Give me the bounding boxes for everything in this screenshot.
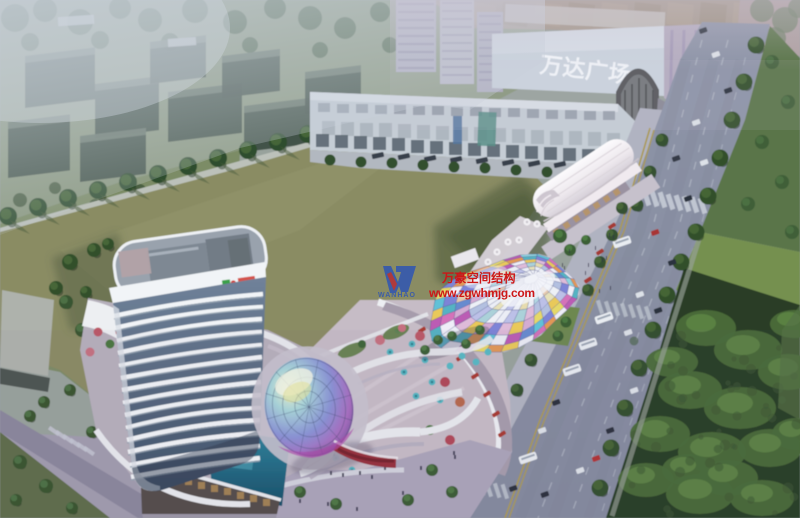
svg-text:www.zgwhmjg.com: www.zgwhmjg.com — [428, 286, 535, 300]
svg-text:WANHAO: WANHAO — [378, 292, 416, 299]
svg-text:万豪空间结构: 万豪空间结构 — [441, 270, 516, 285]
